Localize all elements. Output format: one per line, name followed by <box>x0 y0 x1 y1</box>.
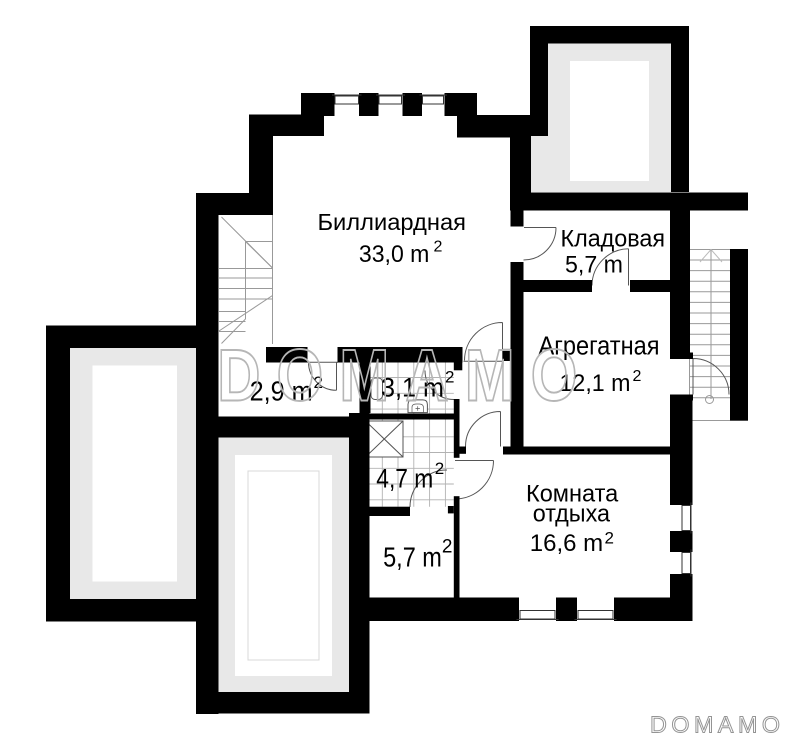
svg-text:2: 2 <box>605 529 614 548</box>
svg-text:5,7 m: 5,7 m <box>383 541 442 572</box>
svg-text:Кладовая: Кладовая <box>561 225 666 252</box>
svg-text:2: 2 <box>633 368 642 385</box>
svg-text:4,7 m: 4,7 m <box>376 463 433 493</box>
svg-text:2: 2 <box>434 239 443 256</box>
svg-text:DOMAMO: DOMAMO <box>217 336 593 417</box>
svg-text:отдыха: отдыха <box>533 501 611 528</box>
svg-text:2: 2 <box>435 459 444 478</box>
svg-text:2: 2 <box>442 537 453 558</box>
svg-text:Биллиардная: Биллиардная <box>318 209 467 235</box>
svg-text:5,7 m: 5,7 m <box>565 252 623 279</box>
svg-text:16,6 m: 16,6 m <box>530 530 603 557</box>
svg-text:33,0 m: 33,0 m <box>359 241 430 268</box>
